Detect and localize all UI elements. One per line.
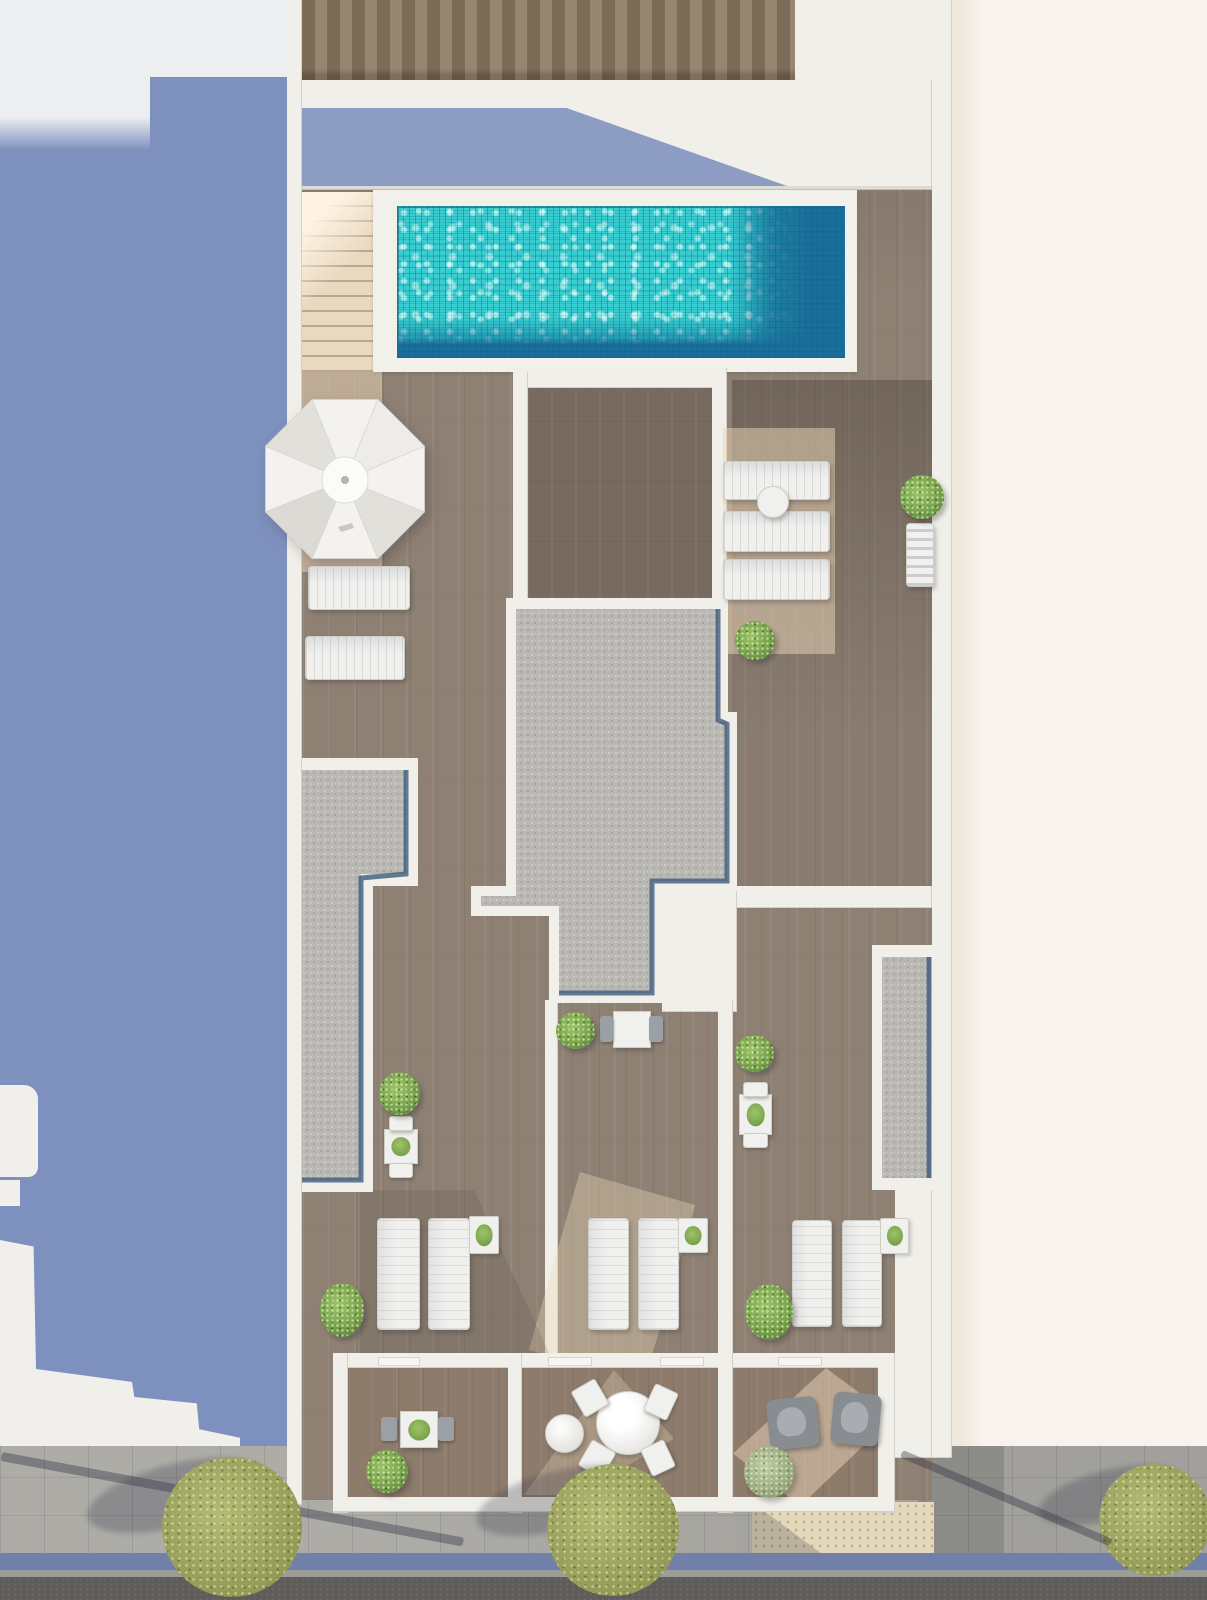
street-tree xyxy=(1099,1464,1207,1576)
street-tree xyxy=(162,1457,302,1597)
street-tree xyxy=(547,1464,679,1596)
aerial-render-scene: Aerial top-down 3D render — rooftop terr… xyxy=(0,0,1207,1600)
street-trees-layer xyxy=(0,0,1207,1600)
